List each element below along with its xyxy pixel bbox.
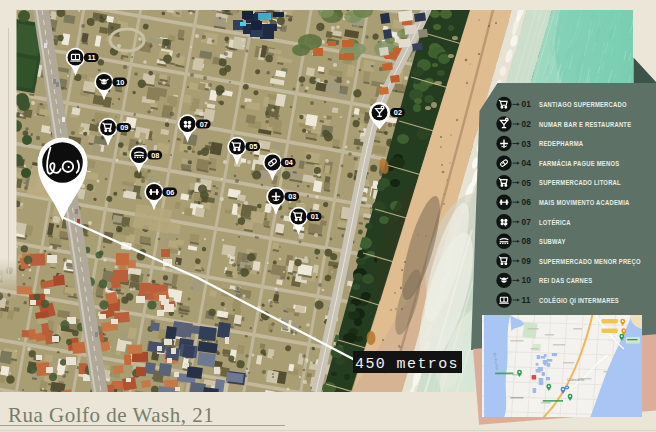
svg-text:04: 04 xyxy=(285,158,294,167)
svg-text:COLÉGIO QI INTERMARES: COLÉGIO QI INTERMARES xyxy=(539,295,619,305)
svg-text:Cabedelo: Cabedelo xyxy=(567,377,585,382)
svg-text:01: 01 xyxy=(522,99,532,109)
svg-text:REDEPHARMA: REDEPHARMA xyxy=(539,140,583,148)
svg-text:LOTÉRICA: LOTÉRICA xyxy=(539,217,571,226)
svg-text:10: 10 xyxy=(116,78,124,87)
svg-text:08: 08 xyxy=(522,236,532,246)
svg-text:SUBWAY: SUBWAY xyxy=(539,237,566,245)
svg-text:04: 04 xyxy=(522,158,532,168)
svg-text:09: 09 xyxy=(120,123,128,132)
svg-text:450 metros: 450 metros xyxy=(355,356,459,373)
svg-text:05: 05 xyxy=(522,178,532,188)
svg-text:SUPERMERCADO LITORAL: SUPERMERCADO LITORAL xyxy=(539,179,621,187)
svg-text:06: 06 xyxy=(522,197,532,207)
svg-text:07: 07 xyxy=(200,120,208,129)
svg-text:REI DAS CARNES: REI DAS CARNES xyxy=(539,277,592,285)
svg-text:11: 11 xyxy=(88,53,96,62)
svg-text:02: 02 xyxy=(522,119,532,129)
svg-text:10: 10 xyxy=(522,275,532,285)
svg-text:06: 06 xyxy=(166,188,174,197)
svg-text:05: 05 xyxy=(249,142,257,151)
svg-text:FARMÁCIA PAGUE MENOS: FARMÁCIA PAGUE MENOS xyxy=(539,158,620,167)
svg-text:NUMAR BAR E RESTAURANTE: NUMAR BAR E RESTAURANTE xyxy=(539,120,631,128)
svg-text:07: 07 xyxy=(522,217,532,227)
svg-text:01: 01 xyxy=(311,212,319,221)
svg-text:11: 11 xyxy=(522,295,531,305)
svg-text:03: 03 xyxy=(522,139,532,149)
svg-text:03: 03 xyxy=(288,192,296,201)
svg-text:SUPERMERCADO MENOR PREÇO: SUPERMERCADO MENOR PREÇO xyxy=(539,257,641,266)
svg-text:08: 08 xyxy=(151,151,159,160)
svg-text:09: 09 xyxy=(522,256,532,266)
svg-text:MAIS MOVIMENTO ACADEMIA: MAIS MOVIMENTO ACADEMIA xyxy=(539,198,629,206)
svg-text:SANTIAGO SUPERMERCADO: SANTIAGO SUPERMERCADO xyxy=(539,101,627,109)
svg-text:02: 02 xyxy=(394,108,402,117)
